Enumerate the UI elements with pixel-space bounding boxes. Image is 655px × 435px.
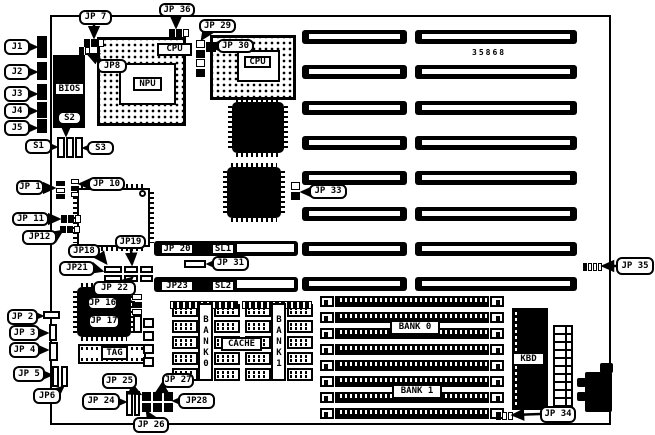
callout-jp21: JP21 [59,261,95,276]
cache-sram-chip [172,336,198,349]
simm-socket-8 [335,408,489,419]
jp11-jumper-pin [68,215,74,223]
callout-jp36: JP 36 [159,3,195,17]
simm-latch-left-6 [320,376,334,387]
jumper-block-c1 [164,392,173,401]
simm-latch-left-1 [320,296,334,307]
edge-connector-j1 [37,36,47,58]
jumper-block-b2 [153,403,162,412]
qfp-pins-right [150,192,154,243]
qfp-pins-bottom [81,337,127,341]
callout-jp7: JP 7 [79,10,112,25]
simm-latch-left-2 [320,312,334,323]
slot-contact-stripe [309,211,400,216]
jumper-block-a2 [142,403,151,412]
qfp-pins-left [223,171,227,214]
callout-jp17: JP 17 [88,314,120,329]
resistor-cell-2 [143,331,154,341]
jp7-jumper-pin [84,39,90,47]
cache-sram-chip [245,368,271,381]
callout-jp5: JP 5 [13,366,45,382]
callout-s2: S2 [57,111,82,125]
sl-slot-stripe [237,244,294,252]
simm-latch-left-3 [320,328,334,339]
qfp-pins-top [236,98,280,102]
jp35-jumper-pin [583,263,587,271]
qfp-pins-right [284,106,288,149]
sl-slot-stripe [237,280,294,288]
jp17-jumper [133,315,142,333]
qfp-pins-left [73,291,77,333]
slot-contact-stripe [422,211,570,216]
jp4-jumper [49,342,58,361]
callout-jp31: JP 31 [212,256,249,271]
jp8-jumper-pin [79,47,84,55]
dip-socket [553,325,573,412]
label-plate-tag: TAG [101,346,128,360]
callout-j4: J4 [4,103,30,119]
label-plate-npu: NPU [133,77,162,91]
pin1-marker [139,190,146,197]
simm-latch-right-7 [490,392,504,403]
jp30-jumper [206,42,216,52]
edge-connector-j5 [37,119,47,133]
qfp-pins-right [281,171,285,214]
jp12-jumper-pin [60,226,66,233]
jp34-jumper-pin [502,412,507,420]
cache-sram-chip [287,320,313,333]
label-plate-jp20: JP 20 [160,243,194,255]
switch-bar-1 [57,137,65,158]
switch-bar-2 [66,137,74,158]
chipset-qfp-2 [227,167,281,218]
jp1-jumper-pin [56,194,65,199]
callout-jp27: JP 27 [162,373,194,388]
din-connector-tab [577,392,586,401]
jp35-jumper-pin [598,263,602,271]
label-plate-cache-bank0: BANK0 [198,303,213,381]
callout-jp1: JP 1 [16,180,44,195]
slot-contact-stripe [309,175,400,180]
slot-contact-stripe [309,140,400,145]
simm-socket-1 [335,296,489,307]
callout-jp22: JP 22 [93,281,136,296]
callout-jp19: JP19 [115,235,146,249]
callout-jp35: JP 35 [616,257,654,275]
jumper-block-a1 [142,392,151,401]
jumper-block-c2 [164,403,173,412]
slot-contact-stripe [422,246,570,251]
label-plate-simm-bank0: BANK 0 [390,320,440,335]
slot-contact-stripe [422,34,570,39]
simm-latch-right-1 [490,296,504,307]
jp2-jumper [43,311,60,319]
callout-jp2: JP 2 [7,309,38,325]
jp29-jumper-pin [196,50,205,58]
jp12-jumper-pin [67,226,73,233]
label-plate-sl1: SL1 [211,243,235,255]
jp35-jumper-pin [588,263,592,271]
jumper-pair-3a [140,266,153,273]
cache-sram-chip [172,320,198,333]
resistor-cell-1 [143,318,154,328]
jp16-jumper-pin [132,302,142,308]
motherboard-diagram: 35868 CPUNPUCPUBIOSTAGCACHEKBDJP 20SL1JP… [0,0,655,435]
cache-sram-chip [214,368,240,381]
callout-jp8: JP8 [97,59,127,73]
jp7-jumper-pin [91,39,97,47]
jumper-pair-1a [104,266,122,273]
jp31-jumper [184,260,206,268]
simm-latch-right-4 [490,344,504,355]
part-number: 35868 [472,48,506,57]
slot-contact-stripe [422,69,570,74]
keyboard-din-connector [585,372,612,412]
simm-latch-left-5 [320,360,334,371]
simm-latch-right-2 [490,312,504,323]
callout-jp3: JP 3 [9,325,40,341]
jumper-pair-2a [124,266,138,273]
callout-jp11: JP 11 [12,212,49,226]
jp5-jumper-2 [61,366,68,387]
resistor-cell-3 [143,344,154,354]
slot-contact-stripe [422,140,570,145]
slot-contact-stripe [309,69,400,74]
qfp-pins-left [228,106,232,149]
jp35-jumper-pin [593,263,597,271]
cache-sram-chip [172,352,198,365]
jp10-jumper-pin [71,186,79,191]
cache-sram-chip [287,336,313,349]
slot-contact-stripe [309,281,400,286]
jp1-jumper-pin [56,188,65,193]
label-plate-sl2: SL2 [211,280,235,292]
label-plate-jp23: JP23 [160,280,194,292]
cache-sram-chip [245,352,271,365]
jp33-jumper-pin [291,182,300,190]
jp10-jumper-pin [71,179,79,184]
simm-latch-right-6 [490,376,504,387]
jp24-bar-1 [126,391,133,416]
simm-socket-4 [335,344,489,355]
simm-latch-left-4 [320,344,334,355]
simm-socket-5 [335,360,489,371]
chipset-qfp-1 [232,102,284,153]
jp29-jumper-pin [196,59,205,67]
callout-s1: S1 [25,139,52,154]
label-plate-simm-bank1: BANK 1 [392,384,442,399]
callout-jp4: JP 4 [9,342,40,358]
jp34-jumper-pin [508,412,513,420]
slot-contact-stripe [422,175,570,180]
jp36-jumper-pin [183,29,189,37]
callout-jp25: JP 25 [102,373,137,389]
callout-j2: J2 [4,64,30,80]
jp3-jumper [49,324,57,341]
label-plate-kbd: KBD [512,352,545,366]
slot-contact-stripe [309,34,400,39]
simm-latch-right-5 [490,360,504,371]
simm-latch-left-7 [320,392,334,403]
jp11-jumper-pin [61,215,67,223]
switch-bar-3 [75,137,83,158]
callout-jp24: JP 24 [82,393,120,410]
jp5-jumper-1 [52,366,59,387]
jp24-bar-2 [134,391,140,416]
callout-jp33: JP 33 [309,184,347,199]
jp10-jumper-pin [71,192,79,197]
callout-j5: J5 [4,120,30,136]
simm-latch-left-8 [320,408,334,419]
resistor-cell-4 [143,357,154,367]
din-connector-tab [577,378,586,387]
edge-connector-j4 [37,102,47,118]
jp36-jumper-pin [176,29,182,37]
callout-jp34: JP 34 [540,406,576,423]
callout-jp30: JP 30 [217,39,254,53]
label-plate-cache: CACHE [221,337,262,351]
callout-jp18: JP18 [68,244,100,258]
callout-jp16: JP 16 [87,296,118,310]
slot-contact-stripe [422,281,570,286]
label-plate-cpu-main: CPU [157,43,192,56]
callout-jp29: JP 29 [199,19,236,33]
jp7-jumper-pin [98,39,104,47]
callout-s3: S3 [87,141,114,155]
jp8-jumper-pin [85,47,90,55]
simm-latch-right-3 [490,328,504,339]
cache-sram-chip [214,320,240,333]
cache-sram-chip [214,352,240,365]
jp16-jumper-pin [132,294,142,300]
cache-sram-chip [245,320,271,333]
jp34-jumper-pin [496,412,501,420]
qfp-pins-bottom [236,153,280,157]
callout-jp26: JP 26 [133,417,169,433]
slot-contact-stripe [309,105,400,110]
jp11-jumper-pin [75,215,81,223]
callout-j3: J3 [4,86,30,102]
label-plate-cache-bank1: BANK1 [271,303,286,381]
jp33-jumper-pin [291,192,300,200]
din-connector-notch [600,363,613,373]
label-plate-bios: BIOS [54,82,85,96]
callout-jp6: JP6 [33,388,61,404]
callout-jp28: JP28 [178,393,215,409]
jumper-block-b1 [153,392,162,401]
qfp-pins-top [231,163,277,167]
edge-connector-j3 [37,84,47,100]
callout-jp10: JP 10 [88,177,125,191]
callout-j1: J1 [4,39,30,55]
edge-connector-j2 [37,62,47,80]
jp36-jumper-pin [169,29,175,37]
slot-contact-stripe [422,105,570,110]
qfp-pins-bottom [231,218,277,222]
label-plate-cpu-upgrade: CPU [244,56,271,68]
jumper-pair-3b [140,275,153,282]
jp29-jumper-pin [196,40,205,48]
jp29-jumper-pin [196,69,205,77]
jp1-jumper-pin [56,181,65,186]
jp12-jumper-pin [74,226,80,233]
slot-contact-stripe [309,246,400,251]
cache-sram-chip [287,368,313,381]
callout-jp12: JP12 [22,230,57,245]
cache-sram-chip [287,352,313,365]
